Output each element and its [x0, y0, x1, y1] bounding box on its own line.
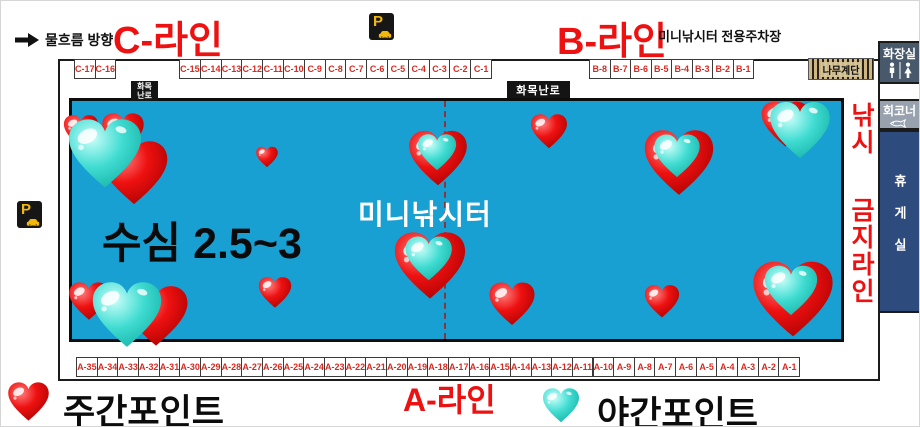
parking-icon: P [369, 13, 394, 40]
heart-night-point-overlay [403, 235, 454, 282]
stairs-label: 나무계단 [821, 62, 862, 77]
heart-night-point [89, 280, 165, 350]
spot-cell-A-25: A-25 [283, 357, 305, 377]
spot-cell-C-6: C-6 [366, 59, 388, 79]
heart-day-point [643, 284, 681, 319]
spot-cell-A-14: A-14 [510, 357, 532, 377]
spot-cell-A-21: A-21 [365, 357, 387, 377]
spot-cell-C-10: C-10 [283, 59, 305, 79]
spot-cell-B-1: B-1 [733, 59, 755, 79]
c-line-title: C-라인 [113, 9, 223, 64]
car-icon [26, 218, 40, 226]
day-point-label: 주간포인트 [63, 384, 224, 427]
heart-day-point [255, 146, 279, 168]
spot-cell-A-19: A-19 [407, 357, 429, 377]
parking-note: 미니낚시터 전용주차장 [658, 26, 781, 45]
a-line-title: A-라인 [403, 375, 496, 421]
spot-cell-C-5: C-5 [387, 59, 409, 79]
no-fishing-text-2: 금지라인 [843, 197, 879, 305]
spot-cell-A-27: A-27 [241, 357, 263, 377]
spot-cell-A-6: A-6 [675, 357, 697, 377]
spot-cell-A-32: A-32 [138, 357, 160, 377]
spot-cell-C-11: C-11 [262, 59, 284, 79]
spot-cell-A-11: A-11 [572, 357, 594, 377]
wood-stove-label: 화목 난로 [131, 81, 158, 101]
stove-line-2: 난로 [137, 91, 152, 100]
spot-cell-B-3: B-3 [692, 59, 714, 79]
toilet-label: 화장실 [883, 45, 916, 62]
spot-cell-A-34: A-34 [97, 357, 119, 377]
heart-night-point-overlay [416, 133, 458, 172]
spot-cell-A-28: A-28 [221, 357, 243, 377]
spot-cell-B-4: B-4 [671, 59, 693, 79]
stove-line-1: 화목 [137, 82, 152, 91]
heart-night-point-overlay [652, 133, 702, 179]
toilet-box: 화장실 [878, 41, 920, 84]
parking-letter: P [373, 13, 383, 30]
spot-cell-C-4: C-4 [408, 59, 430, 79]
spot-cell-C-9: C-9 [304, 59, 326, 79]
arrow-right-icon [15, 32, 39, 48]
depth-label: 수심 2.5~3 [102, 209, 302, 271]
spot-cell-A-3: A-3 [737, 357, 759, 377]
spot-cell-A-13: A-13 [531, 357, 553, 377]
spot-cell-C-3: C-3 [429, 59, 451, 79]
spot-cell-B-2: B-2 [712, 59, 734, 79]
spot-cell-A-23: A-23 [324, 357, 346, 377]
rest-room-label: 휴게실 [890, 174, 909, 270]
spot-cell-A-24: A-24 [303, 357, 325, 377]
spot-cell-C-12: C-12 [241, 59, 263, 79]
spot-cell-A-26: A-26 [262, 357, 284, 377]
spot-cell-A-30: A-30 [179, 357, 201, 377]
spot-cell-C-17: C-17 [74, 59, 96, 79]
spot-cell-A-35: A-35 [76, 357, 98, 377]
spot-cell-C-8: C-8 [325, 59, 347, 79]
pond-name: 미니낚시터 [358, 193, 492, 233]
heart-day-point [257, 276, 293, 309]
spot-cell-A-12: A-12 [551, 357, 573, 377]
spot-cell-A-2: A-2 [758, 357, 780, 377]
heart-night-point-overlay [767, 100, 833, 161]
night-point-label: 야간포인트 [597, 386, 758, 427]
fish-icon [887, 119, 913, 128]
no-fishing-text-1: 낚시 [843, 102, 879, 156]
b-line-title: B-라인 [557, 10, 667, 65]
spot-cell-A-22: A-22 [345, 357, 367, 377]
sashimi-corner-box: 회코너 [878, 99, 920, 130]
sashimi-corner-label: 회코너 [883, 102, 916, 119]
spot-cell-A-29: A-29 [200, 357, 222, 377]
spot-cell-A-20: A-20 [386, 357, 408, 377]
heart-day-point [487, 281, 537, 327]
rest-room-box: 휴게실 [878, 130, 920, 313]
spot-cell-A-8: A-8 [634, 357, 656, 377]
flow-label: 물흐름 방향 [45, 30, 113, 50]
car-icon [378, 30, 392, 38]
spot-cell-A-15: A-15 [489, 357, 511, 377]
water-flow-direction: 물흐름 방향 [15, 30, 113, 50]
spot-cell-A-33: A-33 [117, 357, 139, 377]
spot-cell-C-13: C-13 [221, 59, 243, 79]
heart-night-point [65, 117, 145, 191]
legend-night-heart-icon [541, 387, 581, 424]
spot-cell-C-2: C-2 [449, 59, 471, 79]
spot-cell-C-7: C-7 [345, 59, 367, 79]
wood-stove-label: 화목난로 [507, 81, 570, 98]
legend-day-heart-icon [6, 381, 51, 422]
restroom-icon [886, 62, 914, 79]
spot-cell-A-5: A-5 [696, 357, 718, 377]
spot-cell-A-10: A-10 [593, 357, 615, 377]
heart-day-point [529, 113, 569, 150]
parking-letter: P [21, 201, 31, 218]
heart-night-point-overlay [762, 264, 820, 317]
spot-cell-A-16: A-16 [469, 357, 491, 377]
parking-icon: P [17, 201, 42, 228]
spot-cell-A-4: A-4 [716, 357, 738, 377]
spot-cell-A-1: A-1 [778, 357, 800, 377]
spot-cell-A-9: A-9 [613, 357, 635, 377]
spot-cell-A-18: A-18 [427, 357, 449, 377]
spot-cell-C-1: C-1 [470, 59, 492, 79]
spot-cell-A-7: A-7 [654, 357, 676, 377]
fishing-site-map: 물흐름 방향 C-라인 B-라인 미니낚시터 전용주차장 P P 나무계단 미니… [0, 0, 920, 427]
wooden-stairs: 나무계단 [808, 58, 874, 80]
spot-cell-A-31: A-31 [159, 357, 181, 377]
spot-cell-A-17: A-17 [448, 357, 470, 377]
